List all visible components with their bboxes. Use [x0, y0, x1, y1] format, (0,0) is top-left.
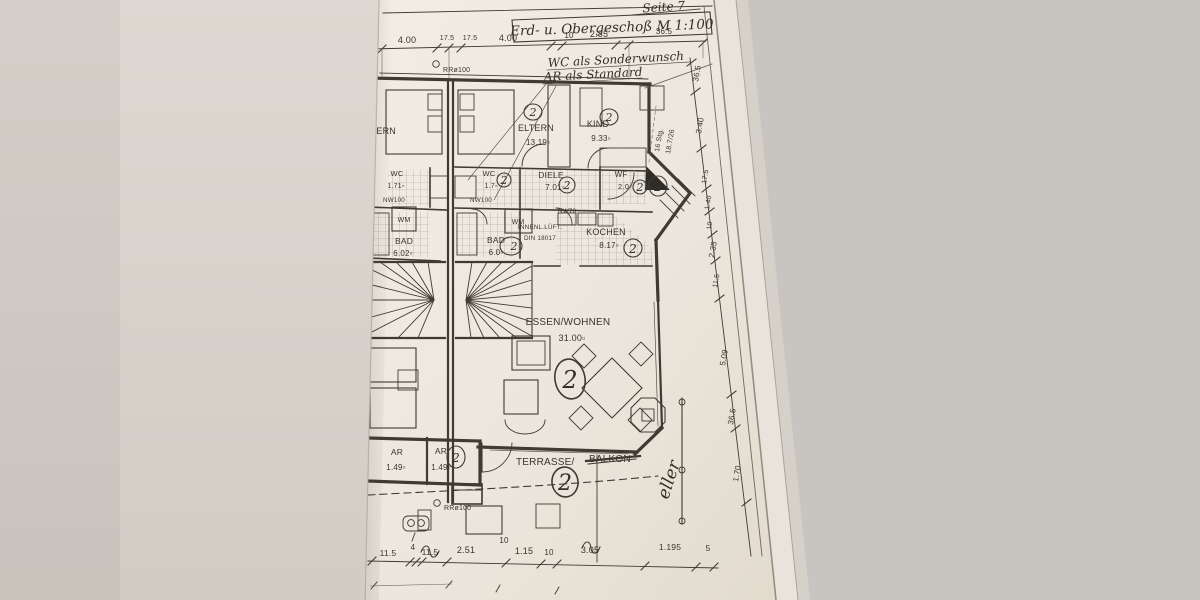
dim-label: 4.00 — [499, 33, 517, 43]
floorplan-drawing: Erd- u. Obergeschoß M 1:100 Seite 7 4.00… — [0, 0, 1200, 600]
dim-label: 11.5 — [380, 548, 397, 558]
room-wc-right: WC — [483, 169, 496, 178]
unit-mark: 2 — [653, 180, 662, 194]
room-ar-left-area: 1.49▫ — [386, 463, 405, 472]
dim-label: 10 — [544, 548, 554, 557]
unit-mark: 2 — [628, 242, 637, 256]
unit-mark: 2 — [500, 174, 508, 187]
nw100-right-label: NW100 — [470, 197, 492, 204]
dim-label: 4.00 — [398, 35, 416, 45]
dim-label: 17.5 — [463, 35, 477, 42]
room-wf-area: 2.0▫ — [618, 182, 632, 191]
dim-label: 2.51 — [457, 545, 475, 555]
room-wc-left-area: 1.71▫ — [387, 183, 404, 190]
room-bad-left: BAD — [395, 236, 413, 246]
dim-label: 1.15 — [515, 546, 533, 556]
dim-label: 1.195 — [659, 542, 681, 552]
room-kochen-area: 8.17▫ — [599, 241, 618, 250]
dim-label: 10 — [564, 31, 574, 40]
room-essen-area: 31.00▫ — [559, 333, 586, 343]
dim-label: 3.05 — [581, 545, 599, 555]
dim-label: 36.5 — [656, 27, 673, 36]
dim-label: 10 — [499, 536, 509, 545]
room-wc-right-area: 1.7▫ — [484, 183, 497, 190]
unit-mark: 2 — [636, 181, 644, 194]
dim-label: 5 — [706, 543, 711, 553]
unit-mark: 2 — [451, 451, 460, 465]
dim-label: 17.5 — [440, 35, 454, 42]
floorplan-photo: Erd- u. Obergeschoß M 1:100 Seite 7 4.00… — [0, 0, 1200, 600]
room-ar-right-area: 1.49▫ — [431, 463, 450, 472]
dim-label: 2.85 — [590, 29, 608, 39]
overlapping-sheet-left — [0, 0, 393, 600]
vent-label-1: INNENL.LÜFT. — [518, 223, 562, 231]
room-eltern-area: 13.19▫ — [526, 138, 550, 147]
rr-bottom-label: RRø100 — [444, 505, 471, 512]
room-eltern: ELTERN — [518, 123, 554, 133]
room-diele: DIELE — [538, 170, 564, 180]
room-bad-left-area: 6.02▫ — [393, 249, 412, 258]
vent-label-2: DIN 18017 — [524, 235, 556, 242]
room-essen: ESSEN/WOHNEN — [526, 317, 611, 328]
room-wc-left: WC — [391, 169, 404, 178]
outlet-count-label: 4 — [411, 543, 416, 552]
nw70-label: NW70 — [558, 208, 577, 215]
unit-mark: 2 — [561, 366, 577, 394]
unit-mark: 2 — [605, 111, 613, 124]
room-kochen: KOCHEN — [586, 227, 626, 237]
room-ar-right: AR — [435, 446, 447, 456]
unit-mark: 2 — [529, 106, 537, 119]
wm-left-label: WM — [398, 217, 411, 224]
rr-top-label: RRø100 — [443, 67, 470, 74]
unit-mark: 2 — [563, 179, 571, 192]
room-wf: WF — [615, 170, 628, 179]
room-kind-area: 9.33▫ — [591, 134, 610, 143]
dim-label: 11.5 — [422, 547, 439, 557]
dim-label: 10 — [706, 221, 714, 230]
room-ar-left: AR — [391, 447, 403, 457]
unit-mark: 2 — [510, 240, 518, 253]
